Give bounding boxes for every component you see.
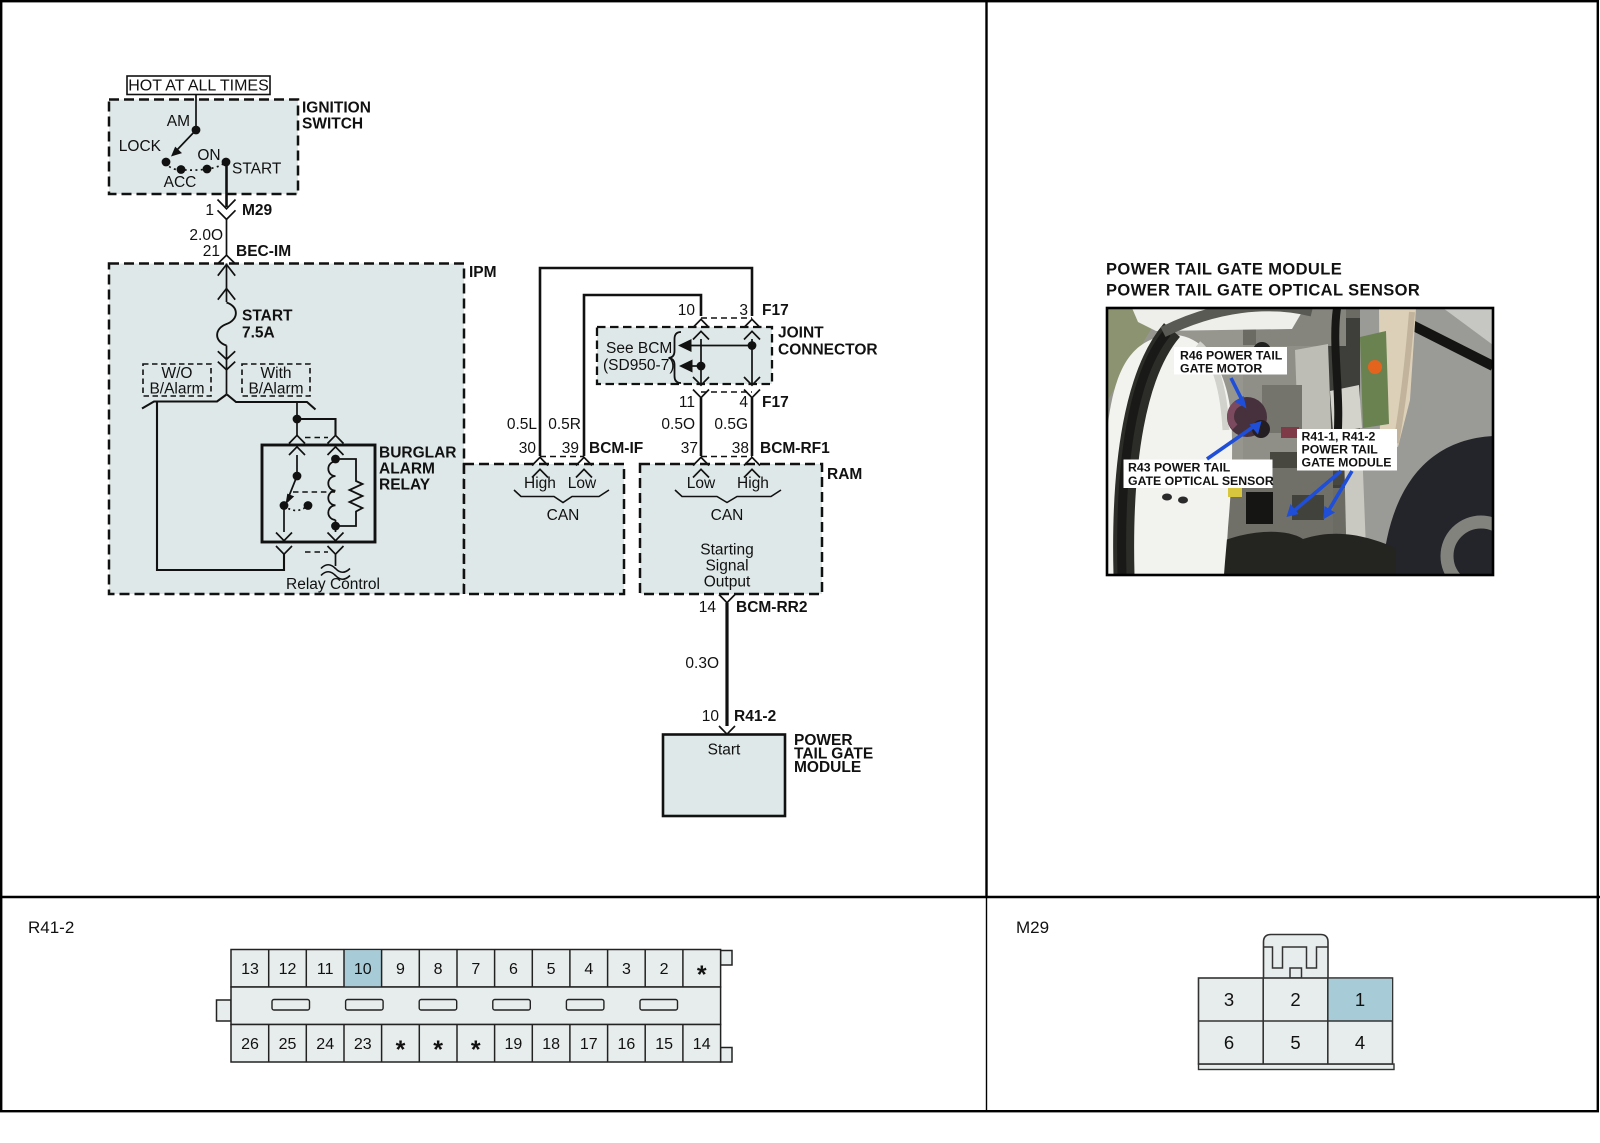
- svg-text:HOT AT ALL TIMES: HOT AT ALL TIMES: [128, 78, 269, 95]
- svg-text:3: 3: [622, 961, 631, 978]
- svg-text:CAN: CAN: [711, 507, 744, 524]
- svg-text:39: 39: [562, 440, 579, 457]
- svg-text:GATE MODULE: GATE MODULE: [1302, 456, 1392, 470]
- svg-text:10: 10: [702, 708, 720, 725]
- svg-text:LOCK: LOCK: [119, 138, 162, 155]
- svg-text:BCM-RR2: BCM-RR2: [736, 599, 807, 616]
- svg-text:CAN: CAN: [547, 507, 580, 524]
- svg-text:BCM-RF1: BCM-RF1: [760, 440, 830, 457]
- svg-text:7.5A: 7.5A: [242, 325, 275, 342]
- svg-text:11: 11: [679, 394, 695, 411]
- svg-text:ACC: ACC: [164, 174, 197, 191]
- svg-text:24: 24: [316, 1036, 334, 1053]
- svg-text:25: 25: [279, 1036, 297, 1053]
- svg-text:R46 POWER TAIL: R46 POWER TAIL: [1180, 349, 1283, 363]
- svg-text:START: START: [232, 161, 282, 178]
- svg-text:POWER TAIL: POWER TAIL: [1302, 443, 1379, 457]
- svg-text:Low: Low: [687, 475, 716, 492]
- svg-text:7: 7: [471, 961, 480, 978]
- svg-text:ALARM: ALARM: [379, 461, 435, 478]
- svg-text:Start: Start: [708, 742, 741, 759]
- svg-text:6: 6: [509, 961, 518, 978]
- svg-text:F17: F17: [762, 302, 789, 319]
- svg-text:*: *: [471, 1036, 481, 1064]
- svg-text:R41-2: R41-2: [28, 918, 74, 937]
- svg-text:M29: M29: [242, 202, 273, 219]
- svg-text:2: 2: [1290, 989, 1300, 1010]
- svg-text:R41-2: R41-2: [734, 708, 776, 725]
- svg-text:AM: AM: [167, 113, 190, 130]
- svg-text:37: 37: [681, 440, 698, 457]
- svg-text:16: 16: [618, 1036, 636, 1053]
- svg-text:B/Alarm: B/Alarm: [248, 381, 303, 398]
- svg-text:4: 4: [584, 961, 593, 978]
- svg-text:0.5L: 0.5L: [507, 416, 538, 433]
- svg-text:GATE MOTOR: GATE MOTOR: [1180, 362, 1262, 376]
- svg-text:BEC-IM: BEC-IM: [236, 243, 291, 260]
- svg-text:21: 21: [203, 243, 220, 260]
- svg-text:W/O: W/O: [162, 365, 193, 382]
- svg-text:9: 9: [396, 961, 405, 978]
- svg-text:1: 1: [205, 202, 214, 219]
- svg-text:SWITCH: SWITCH: [302, 116, 363, 133]
- svg-text:14: 14: [699, 599, 717, 616]
- svg-text:F17: F17: [762, 394, 789, 411]
- svg-text:8: 8: [434, 961, 443, 978]
- svg-text:0.5O: 0.5O: [661, 416, 695, 433]
- svg-text:MODULE: MODULE: [794, 759, 861, 776]
- svg-text:See BCM: See BCM: [606, 340, 672, 357]
- svg-text:High: High: [737, 475, 769, 492]
- svg-text:High: High: [524, 475, 556, 492]
- svg-text:10: 10: [354, 961, 372, 978]
- svg-text:(SD950-7): (SD950-7): [603, 357, 675, 374]
- svg-text:3: 3: [739, 302, 748, 319]
- svg-text:0.5G: 0.5G: [714, 416, 748, 433]
- svg-text:12: 12: [279, 961, 297, 978]
- svg-text:19: 19: [505, 1036, 523, 1053]
- svg-text:30: 30: [519, 440, 537, 457]
- svg-text:0.5R: 0.5R: [548, 416, 581, 433]
- svg-text:23: 23: [354, 1036, 372, 1053]
- svg-text:6: 6: [1224, 1032, 1234, 1053]
- svg-text:4: 4: [1355, 1032, 1365, 1053]
- svg-text:0.3O: 0.3O: [685, 655, 719, 672]
- svg-text:START: START: [242, 308, 293, 325]
- svg-text:GATE OPTICAL SENSOR: GATE OPTICAL SENSOR: [1128, 474, 1274, 488]
- svg-text:R41-1, R41-2: R41-1, R41-2: [1302, 430, 1376, 444]
- svg-text:M29: M29: [1016, 918, 1049, 937]
- svg-text:ON: ON: [197, 147, 220, 164]
- svg-text:15: 15: [655, 1036, 673, 1053]
- svg-text:Output: Output: [704, 574, 751, 591]
- svg-text:1: 1: [1355, 989, 1365, 1010]
- svg-text:4: 4: [739, 394, 748, 411]
- svg-text:R43 POWER TAIL: R43 POWER TAIL: [1128, 461, 1231, 475]
- svg-text:CONNECTOR: CONNECTOR: [778, 342, 878, 359]
- svg-text:11: 11: [317, 961, 334, 978]
- svg-text:With: With: [261, 365, 292, 382]
- svg-text:POWER TAIL GATE MODULE: POWER TAIL GATE MODULE: [1106, 261, 1342, 279]
- svg-text:3: 3: [1224, 989, 1234, 1010]
- svg-text:Low: Low: [568, 475, 597, 492]
- svg-text:JOINT: JOINT: [778, 325, 824, 342]
- svg-text:38: 38: [732, 440, 749, 457]
- svg-text:Starting: Starting: [700, 542, 753, 559]
- svg-text:10: 10: [678, 302, 696, 319]
- svg-text:13: 13: [241, 961, 259, 978]
- svg-text:RAM: RAM: [827, 466, 862, 483]
- svg-text:2: 2: [660, 961, 669, 978]
- svg-text:IGNITION: IGNITION: [302, 100, 371, 117]
- svg-text:5: 5: [1290, 1032, 1300, 1053]
- svg-text:BURGLAR: BURGLAR: [379, 445, 457, 462]
- svg-text:2.0O: 2.0O: [189, 227, 223, 244]
- svg-text:RELAY: RELAY: [379, 477, 431, 494]
- svg-text:POWER TAIL GATE OPTICAL SENSOR: POWER TAIL GATE OPTICAL SENSOR: [1106, 282, 1420, 300]
- svg-text:26: 26: [241, 1036, 259, 1053]
- svg-text:*: *: [433, 1036, 443, 1064]
- svg-text:Relay Control: Relay Control: [286, 576, 380, 593]
- svg-text:14: 14: [693, 1036, 711, 1053]
- svg-text:Signal: Signal: [705, 558, 748, 575]
- svg-text:*: *: [697, 961, 707, 989]
- svg-text:B/Alarm: B/Alarm: [149, 381, 204, 398]
- svg-text:BCM-IF: BCM-IF: [589, 440, 643, 457]
- svg-text:*: *: [396, 1036, 406, 1064]
- svg-text:5: 5: [547, 961, 556, 978]
- svg-text:IPM: IPM: [469, 264, 497, 281]
- svg-text:17: 17: [580, 1036, 598, 1053]
- svg-text:18: 18: [542, 1036, 560, 1053]
